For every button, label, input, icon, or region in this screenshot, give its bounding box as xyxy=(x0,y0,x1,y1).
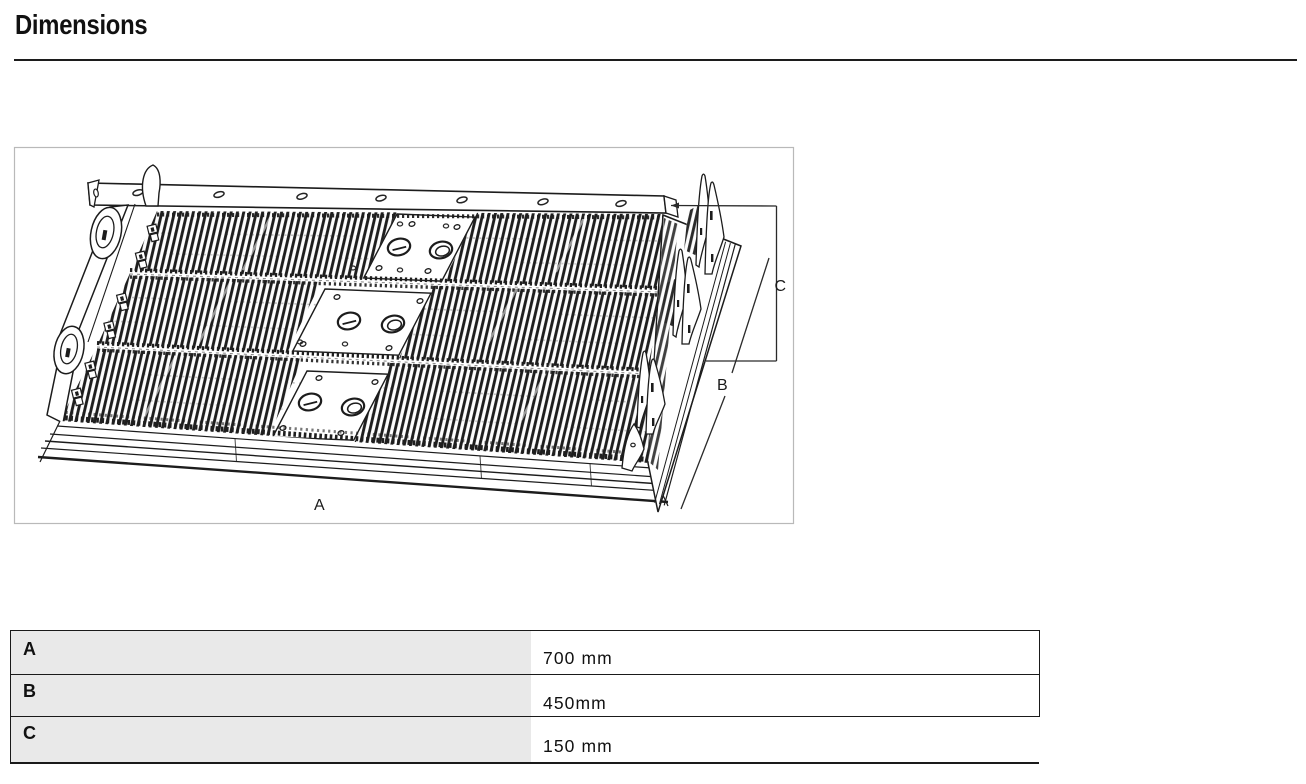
svg-text:A: A xyxy=(314,497,325,514)
svg-text:B: B xyxy=(717,377,728,394)
svg-text:C: C xyxy=(775,278,787,295)
